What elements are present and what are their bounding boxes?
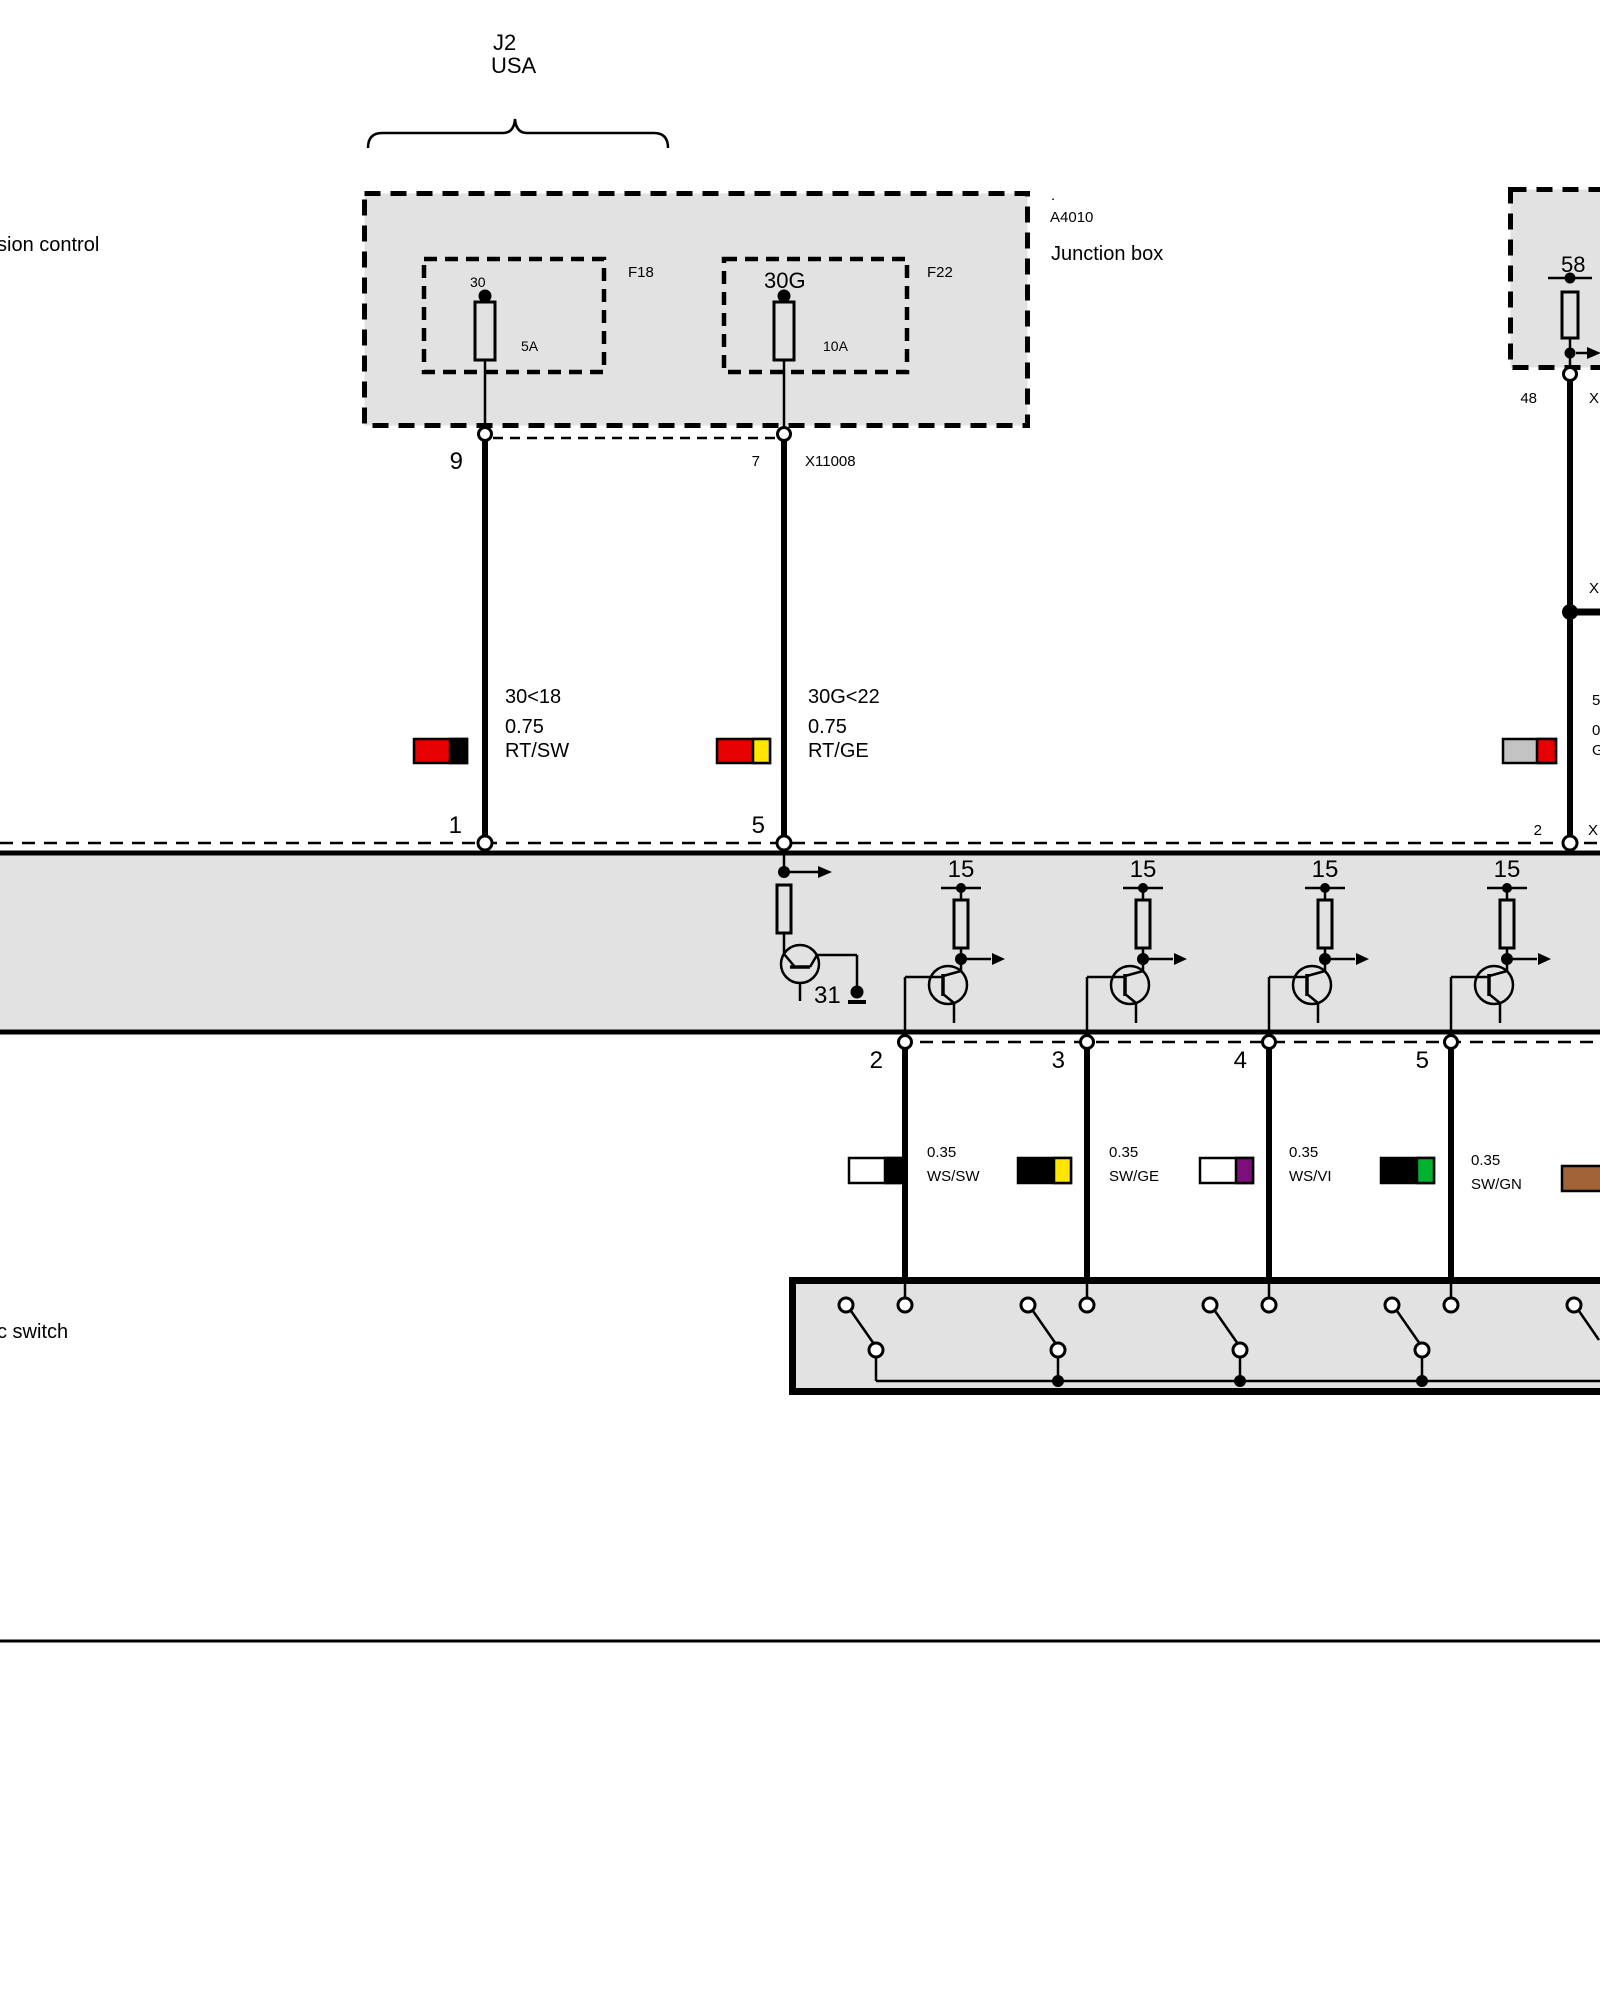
terminal-pin9 [479, 428, 492, 441]
connector-right-top: X [1589, 390, 1599, 407]
fuse-f18-terminal: 30 [470, 274, 486, 290]
right-box: 58 48 X [1511, 190, 1600, 408]
wire1-label1: 30<18 [505, 686, 561, 708]
kl15-label: 15 [948, 856, 975, 883]
right-box-terminal: 58 [1561, 252, 1585, 277]
color-chip-ws-vi [1200, 1158, 1253, 1183]
color-chip-sw-ge [1018, 1158, 1071, 1183]
variant-code: J2 [493, 30, 516, 55]
color-chip-br [1562, 1166, 1600, 1191]
junction-x-label: X [1589, 580, 1599, 597]
wire-rt-ge: 30G<22 0.75 RT/GE 5 [717, 440, 880, 841]
resistor-icon [1318, 900, 1332, 948]
switch-box-outline [793, 1281, 1600, 1392]
out-wire1-size: 0.35 [927, 1144, 956, 1161]
terminal-in-1 [478, 836, 492, 850]
fuse-f22-icon [774, 302, 794, 360]
out-wire4-code: SW/GN [1471, 1176, 1522, 1193]
pin-out-5: 5 [1416, 1047, 1429, 1074]
connector-x11008-label: X11008 [805, 453, 856, 470]
ground-node [851, 986, 864, 999]
fuse-f18-rating: 5A [521, 338, 539, 354]
fuse-f18-slot: F18 [628, 264, 654, 281]
right-wire-label2: 0. [1592, 722, 1600, 739]
resistor-icon [1500, 900, 1514, 948]
terminal-out-2 [899, 1036, 912, 1049]
junction-node-353 [1565, 348, 1576, 359]
kl15-label: 15 [1130, 856, 1157, 883]
pin-48: 48 [1520, 390, 1537, 407]
terminal-out-3 [1081, 1036, 1094, 1049]
out-wire2-size: 0.35 [1109, 1144, 1138, 1161]
right-wire-label3: G [1592, 742, 1600, 759]
right-wire-label1: 58 [1592, 692, 1600, 709]
pin-out-3: 3 [1052, 1047, 1065, 1074]
junction-box-dot: . [1051, 187, 1055, 204]
pin-9: 9 [450, 448, 463, 475]
wiring-diagram: J2 USA sion control c switch . A4010 Jun… [0, 0, 1600, 2000]
out-wire2-code: SW/GE [1109, 1168, 1159, 1185]
module-band: 31 15 15 [0, 836, 1600, 1049]
out-wire1-code: WS/SW [927, 1168, 980, 1185]
ground-31: 31 [814, 982, 841, 1009]
terminal-out-5 [1445, 1036, 1458, 1049]
left-component-label: sion control [0, 234, 99, 256]
wire2-label1: 30G<22 [808, 686, 880, 708]
wire1-label3: RT/SW [505, 740, 569, 762]
fuse-58-icon [1562, 292, 1578, 338]
color-chip-rt-sw [414, 739, 467, 763]
kl15-label: 15 [1312, 856, 1339, 883]
wire1-label2: 0.75 [505, 716, 544, 738]
pin-out-4: 4 [1234, 1047, 1247, 1074]
pin-7: 7 [752, 453, 760, 470]
switch-component-label: c switch [0, 1321, 68, 1343]
fuse-f18-icon [475, 302, 495, 360]
wire-rt-sw: 30<18 0.75 RT/SW 1 [414, 440, 569, 841]
color-chip-sw-gn [1381, 1158, 1434, 1183]
pin-1: 1 [449, 812, 462, 839]
wire2-label3: RT/GE [808, 740, 869, 762]
fuse-f22-terminal: 30G [764, 268, 806, 293]
color-chip-rt-ge [717, 739, 770, 763]
junction-box-name: Junction box [1051, 243, 1163, 265]
variant-country: USA [491, 53, 537, 78]
color-chip-gr-rt [1503, 739, 1556, 763]
module-fill [0, 855, 1600, 1031]
bus-58-node [1565, 273, 1576, 284]
junction-box-outline [365, 194, 1028, 426]
terminal-pin48 [1564, 368, 1577, 381]
kl15-label: 15 [1494, 856, 1521, 883]
out-wire3-size: 0.35 [1289, 1144, 1318, 1161]
terminal-out-4 [1263, 1036, 1276, 1049]
variant-label: J2 USA [368, 30, 668, 148]
fuse-f22-rating: 10A [823, 338, 849, 354]
out-wire4-size: 0.35 [1471, 1152, 1500, 1169]
resistor-icon [777, 885, 791, 933]
output-wires: 2 3 4 5 0.35 WS/SW 0.35 SW/GE 0.35 WS/VI [849, 1047, 1600, 1283]
junction-box: . A4010 Junction box 30 F18 5A 30G F22 1… [365, 187, 1164, 475]
wire2-label2: 0.75 [808, 716, 847, 738]
resistor-icon [1136, 900, 1150, 948]
junction-box-code: A4010 [1050, 209, 1093, 226]
out-wire3-code: WS/VI [1289, 1168, 1332, 1185]
terminal-pin7 [778, 428, 791, 441]
connector-right-bottom: X [1588, 822, 1598, 839]
pin-2-right: 2 [1534, 822, 1542, 839]
right-wire: X 58 0. G 2 X [1503, 380, 1600, 841]
switch-box [793, 1281, 1600, 1392]
terminal-in-5 [777, 836, 791, 850]
resistor-icon [954, 900, 968, 948]
pin-5: 5 [752, 812, 765, 839]
pin-out-2: 2 [870, 1047, 883, 1074]
fuse-f22-slot: F22 [927, 264, 953, 281]
color-chip-ws-sw [849, 1158, 902, 1183]
terminal-in-2r [1563, 836, 1577, 850]
brace [368, 119, 668, 148]
